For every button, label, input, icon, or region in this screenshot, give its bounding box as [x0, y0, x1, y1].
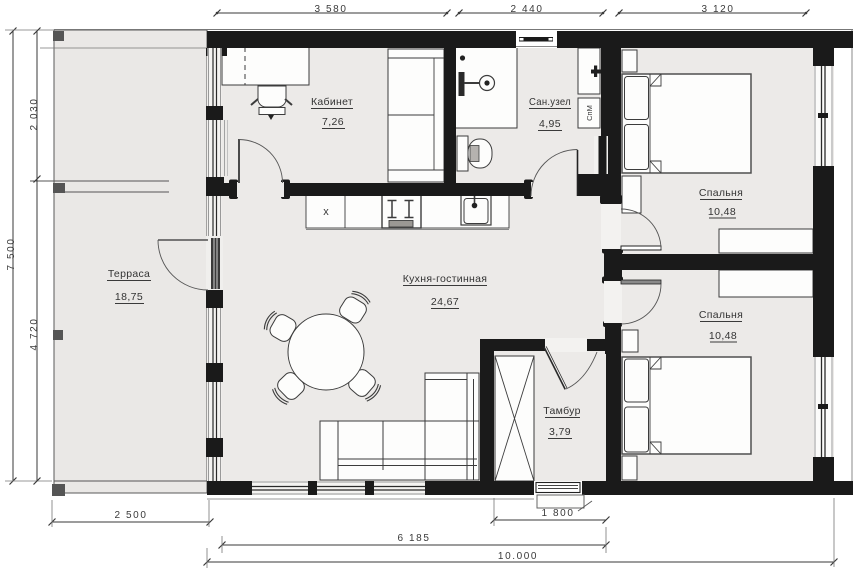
svg-text:1 800: 1 800 [541, 508, 574, 519]
svg-text:18,75: 18,75 [115, 291, 143, 303]
svg-text:Сан.узел: Сан.узел [529, 96, 571, 108]
svg-text:x: x [323, 206, 329, 218]
svg-text:10,48: 10,48 [708, 206, 736, 218]
svg-text:Тамбур: Тамбур [543, 405, 580, 417]
svg-text:2 440: 2 440 [510, 4, 543, 15]
svg-text:4,95: 4,95 [539, 118, 561, 130]
svg-text:Спальня: Спальня [699, 187, 743, 199]
svg-text:3,79: 3,79 [549, 426, 571, 438]
svg-text:3 580: 3 580 [314, 4, 347, 15]
svg-text:2 030: 2 030 [29, 97, 40, 130]
svg-text:СпМ: СпМ [585, 105, 594, 121]
svg-text:Спальня: Спальня [699, 309, 743, 321]
svg-text:2 500: 2 500 [114, 510, 147, 521]
svg-text:3 120: 3 120 [701, 4, 734, 15]
svg-text:Кухня-гостинная: Кухня-гостинная [403, 273, 488, 285]
svg-text:Терраса: Терраса [108, 268, 150, 280]
svg-text:4 720: 4 720 [29, 317, 40, 350]
svg-text:7,26: 7,26 [322, 116, 344, 128]
svg-text:Кабинет: Кабинет [311, 96, 353, 108]
svg-text:7 500: 7 500 [6, 237, 17, 270]
svg-text:24,67: 24,67 [431, 296, 459, 308]
svg-text:10,48: 10,48 [709, 330, 737, 342]
svg-text:6 185: 6 185 [397, 533, 430, 544]
svg-text:10.000: 10.000 [498, 551, 538, 562]
